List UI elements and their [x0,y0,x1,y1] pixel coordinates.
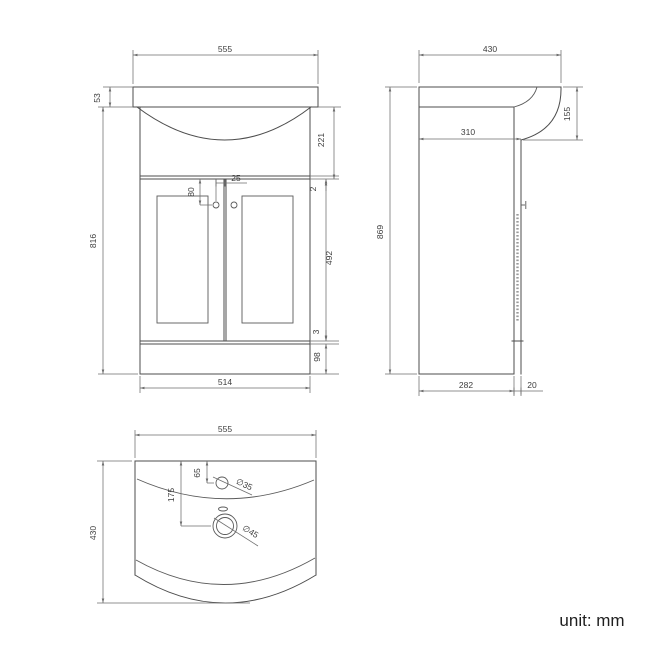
dim-side-cabinet-depth: 282 [459,380,473,390]
right-door-knob [231,202,237,208]
dim-plan-tap-offset: 65 [192,468,202,478]
left-door-knob [213,202,219,208]
overflow-hole [219,507,228,511]
plan-bowl-back-curve [137,479,314,499]
dim-side-overall-depth: 430 [483,44,497,54]
dim-front-handle-drop: 80 [186,187,196,197]
dim-plan-overall-width: 555 [218,424,232,434]
left-door-panel [157,196,208,323]
vanity-technical-drawing: 555 53 816 221 2 492 3 98 [0,0,650,650]
plan-front-inner-curve [136,558,315,585]
side-basin-front-curve [521,87,561,140]
dim-front-basin-height: 221 [316,133,326,147]
dim-side-basin-front-height: 155 [562,107,572,121]
dim-side-door-thickness: 20 [527,380,537,390]
dim-plan-overall-depth: 430 [88,526,98,540]
plan-view: ∅35 ∅45 555 430 65 175 [88,424,316,603]
front-view: 555 53 816 221 2 492 3 98 [88,44,341,393]
dim-plan-waste-diameter: ∅45 [241,523,261,540]
dim-front-handle-spacing: 25 [231,173,241,183]
waste-hole-inner [217,518,234,535]
side-rim-inner-curve [514,87,537,107]
dim-plan-waste-offset: 175 [166,488,176,502]
dim-front-plinth-height: 98 [312,352,322,362]
basin-bowl-curve [137,107,311,140]
basin-rim-outline [133,87,318,107]
side-view: 430 869 155 310 282 20 [375,44,583,396]
dim-front-bottom-gap: 3 [311,329,321,334]
dim-front-door-height: 492 [324,251,334,265]
plan-front-outer-curve [135,575,316,603]
right-door-panel [242,196,293,323]
dim-front-rim-height: 53 [92,93,102,103]
dim-front-top-gap: 2 [308,186,318,191]
drawing-canvas: 555 53 816 221 2 492 3 98 [0,0,650,650]
dim-front-overall-width: 555 [218,44,232,54]
dim-front-cabinet-width: 514 [218,377,232,387]
dim-plan-tap-diameter: ∅35 [235,476,255,492]
dim-side-overall-height: 869 [375,225,385,239]
unit-label: unit: mm [559,611,624,630]
dim-front-body-height: 816 [88,234,98,248]
dim-side-top-depth: 310 [461,127,475,137]
